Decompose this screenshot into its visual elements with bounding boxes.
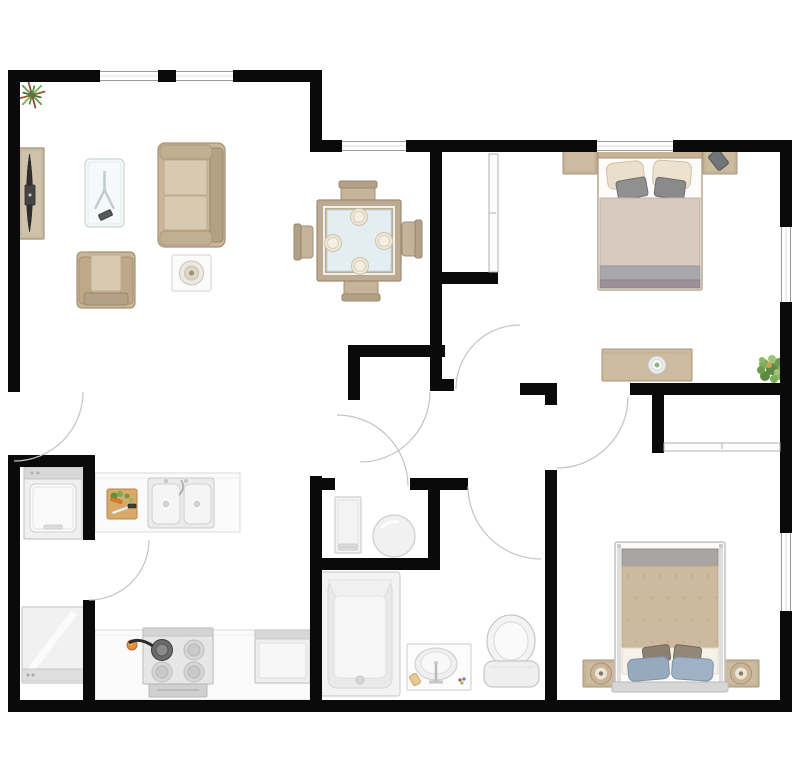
bedroom-1-top-window xyxy=(597,140,673,152)
living-window-1 xyxy=(100,70,158,82)
bathroom-door-arc xyxy=(468,486,541,559)
dining-chair-left xyxy=(294,224,313,260)
cutting-board xyxy=(107,489,137,519)
wall xyxy=(348,345,360,400)
side-table-lamp xyxy=(172,255,211,291)
bathroom-vanity xyxy=(407,644,471,690)
wall xyxy=(83,455,95,540)
dining-chair-top xyxy=(339,181,377,201)
dining-window xyxy=(342,140,406,152)
wall xyxy=(83,600,95,712)
wall xyxy=(310,476,322,712)
wall xyxy=(8,700,792,712)
wall xyxy=(545,470,557,712)
floor-plan-canvas xyxy=(0,0,800,772)
living-window-2 xyxy=(176,70,233,82)
wall xyxy=(428,478,440,570)
dining-chair-bottom xyxy=(342,280,380,301)
refrigerator xyxy=(22,607,84,683)
wall xyxy=(8,461,20,712)
wall xyxy=(348,345,445,357)
wall xyxy=(652,395,664,453)
wall xyxy=(520,383,557,395)
bedroom-1-side-window xyxy=(780,227,792,302)
sofa xyxy=(158,143,225,247)
wall xyxy=(8,70,318,82)
washing-machine xyxy=(24,467,82,539)
bedroom-2-side-window xyxy=(780,533,792,611)
dining-table xyxy=(317,200,401,281)
kitchen-sink xyxy=(148,478,214,528)
bedroom-1-closet-door xyxy=(489,154,498,272)
kitchen-door-arc xyxy=(89,540,149,600)
wall xyxy=(442,272,498,284)
wall xyxy=(545,395,557,405)
bathtub xyxy=(320,572,400,696)
dishwasher xyxy=(255,630,310,683)
coat-closet-door-arc xyxy=(360,392,430,462)
utility-cabinet xyxy=(335,497,361,553)
wall xyxy=(8,70,20,392)
wall xyxy=(442,379,454,391)
bedroom-2-closet-door xyxy=(664,443,780,451)
tv-console xyxy=(19,148,44,239)
dresser-bedroom-1 xyxy=(602,349,692,381)
coffee-table xyxy=(85,159,124,227)
bedroom-1-door-arc xyxy=(456,325,520,389)
bedroom-2-door-arc xyxy=(557,397,628,468)
wall xyxy=(780,140,792,712)
potted-plant-living xyxy=(19,82,44,107)
entry-door-arc xyxy=(14,392,83,461)
toilet xyxy=(484,615,539,687)
bed-bedroom-1 xyxy=(598,146,702,290)
dining-chair-right xyxy=(402,220,422,258)
wall xyxy=(310,478,335,490)
utility-door-arc xyxy=(337,415,408,486)
water-heater xyxy=(373,515,415,557)
floor-plan xyxy=(0,0,800,772)
armchair xyxy=(77,252,135,308)
wall xyxy=(310,558,440,570)
wall xyxy=(630,383,792,395)
nightstand-bedroom2-right xyxy=(723,660,759,687)
bed-bedroom-2 xyxy=(612,542,728,692)
wall xyxy=(310,70,322,152)
